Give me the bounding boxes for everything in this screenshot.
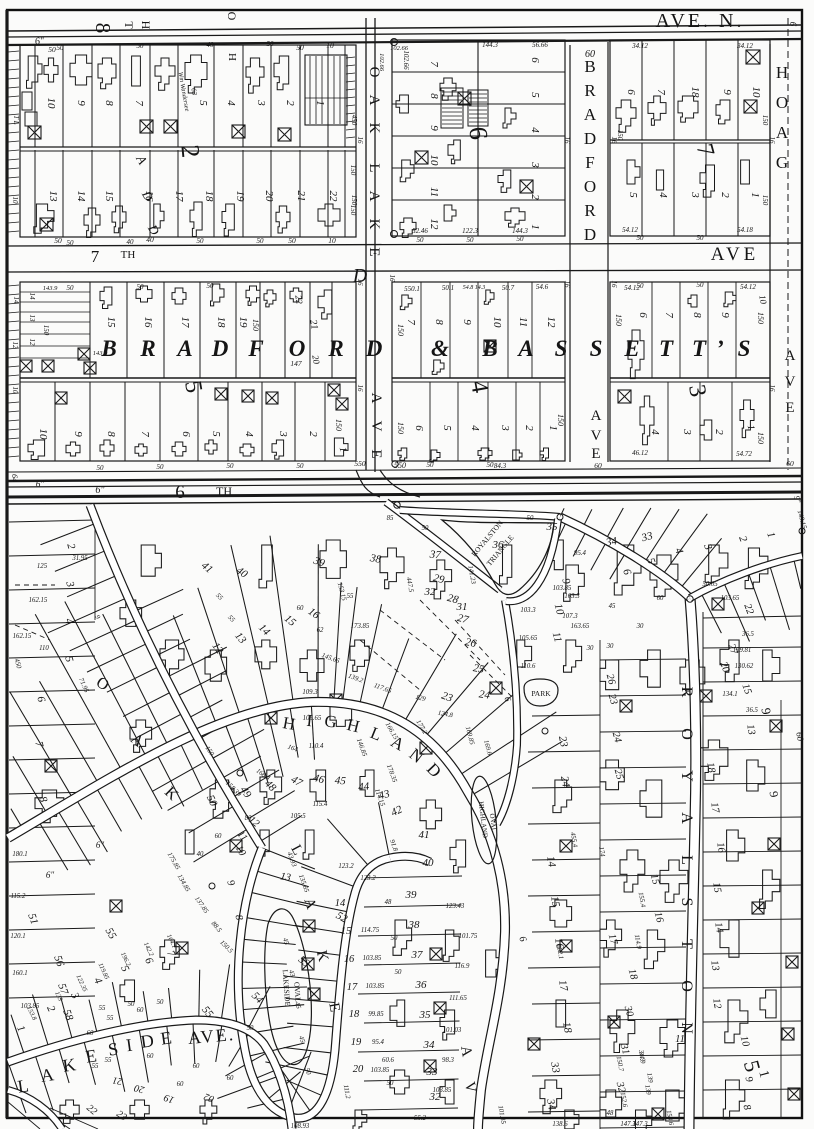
svg-text:19: 19: [351, 1037, 362, 1048]
svg-text:G: G: [776, 153, 788, 172]
svg-text:50: 50: [637, 234, 645, 242]
svg-text:550: 550: [394, 461, 406, 470]
svg-text:50: 50: [297, 462, 305, 470]
svg-text:12: 12: [545, 317, 557, 329]
svg-text:16: 16: [610, 281, 618, 289]
svg-text:8: 8: [103, 100, 115, 106]
svg-text:R: R: [584, 201, 596, 220]
svg-text:50: 50: [67, 239, 75, 247]
svg-text:R: R: [678, 687, 695, 698]
svg-text:64: 64: [10, 474, 19, 482]
svg-text:A: A: [368, 393, 384, 404]
svg-text:50: 50: [157, 999, 164, 1006]
svg-text:150: 150: [614, 314, 623, 326]
svg-text:2: 2: [529, 194, 541, 200]
svg-text:50: 50: [697, 281, 705, 289]
svg-text:180.1: 180.1: [12, 851, 27, 858]
svg-text:103.65: 103.65: [721, 595, 740, 602]
svg-text:16: 16: [388, 275, 396, 283]
svg-text:36.5: 36.5: [741, 631, 754, 638]
svg-text:7: 7: [405, 319, 417, 325]
svg-text:14: 14: [335, 898, 346, 909]
svg-text:103.85: 103.85: [366, 983, 385, 990]
svg-text:5: 5: [210, 431, 222, 437]
svg-text:3: 3: [255, 99, 267, 106]
svg-text:36.5: 36.5: [745, 707, 758, 714]
svg-text:125: 125: [37, 563, 48, 570]
svg-text:S: S: [678, 898, 695, 907]
svg-text:16: 16: [610, 137, 618, 145]
svg-text:115.4: 115.4: [313, 801, 328, 808]
svg-text:3: 3: [529, 161, 541, 168]
svg-text:E: E: [368, 449, 384, 458]
svg-text:50: 50: [517, 235, 525, 243]
svg-text:52.46: 52.46: [412, 227, 428, 235]
svg-text:17: 17: [347, 982, 358, 993]
svg-text:50: 50: [137, 42, 145, 50]
svg-text:4: 4: [649, 429, 661, 435]
svg-text:O: O: [678, 728, 695, 740]
svg-text:14: 14: [28, 293, 36, 301]
svg-text:G: G: [323, 711, 338, 732]
svg-text:50: 50: [48, 45, 56, 54]
svg-text:50: 50: [427, 461, 435, 469]
svg-text:18: 18: [215, 317, 227, 329]
svg-text:39: 39: [405, 889, 418, 901]
svg-text:O: O: [289, 336, 306, 361]
svg-text:110.4: 110.4: [309, 743, 324, 750]
svg-text:A: A: [776, 123, 789, 142]
svg-text:56.66: 56.66: [532, 41, 548, 49]
svg-text:150: 150: [761, 195, 769, 206]
svg-text:6: 6: [180, 431, 192, 437]
svg-text:A: A: [678, 812, 695, 824]
svg-text:V: V: [591, 428, 602, 444]
svg-text:60: 60: [193, 1063, 200, 1070]
svg-text:V: V: [785, 374, 796, 390]
svg-text:10: 10: [11, 387, 19, 395]
svg-text:PARK: PARK: [531, 689, 551, 698]
svg-text:50: 50: [391, 935, 398, 942]
svg-text:35: 35: [546, 521, 559, 533]
svg-text:103.85: 103.85: [21, 1003, 40, 1010]
svg-text:6": 6": [96, 840, 105, 850]
svg-text:55: 55: [92, 1063, 99, 1070]
svg-text:16: 16: [768, 385, 776, 393]
svg-text:18: 18: [203, 191, 215, 203]
svg-text:120.1: 120.1: [10, 933, 25, 940]
svg-text:55: 55: [99, 1005, 106, 1012]
svg-text:R: R: [327, 336, 343, 361]
svg-text:8: 8: [105, 431, 117, 437]
svg-text:T: T: [678, 939, 695, 949]
svg-text:8: 8: [433, 319, 445, 325]
svg-text:V: V: [368, 421, 384, 432]
svg-text:130.62: 130.62: [735, 663, 754, 670]
svg-text:10: 10: [326, 41, 334, 50]
svg-text:50: 50: [637, 282, 645, 290]
svg-text:N: N: [678, 1022, 695, 1034]
svg-text:162.15: 162.15: [13, 633, 32, 640]
svg-text:103.3: 103.3: [520, 607, 536, 614]
svg-text:50: 50: [247, 1025, 254, 1032]
svg-text:54.72: 54.72: [736, 450, 752, 458]
svg-text:21: 21: [295, 191, 307, 202]
svg-text:55.2: 55.2: [414, 1115, 426, 1122]
svg-text:98.3: 98.3: [442, 1057, 454, 1064]
svg-text:TH: TH: [121, 249, 136, 261]
svg-text:34.12: 34.12: [736, 42, 753, 50]
svg-text:6: 6: [463, 126, 493, 141]
svg-text:50.1: 50.1: [442, 284, 454, 292]
svg-text:2: 2: [523, 425, 535, 431]
svg-text:F: F: [247, 336, 263, 361]
svg-text:84.3: 84.3: [494, 462, 507, 470]
svg-text:E: E: [366, 247, 382, 256]
svg-text:45: 45: [609, 603, 616, 610]
svg-text:6": 6": [95, 485, 105, 496]
svg-text:123.43: 123.43: [446, 903, 465, 910]
svg-text:19: 19: [234, 191, 246, 203]
svg-text:123.2: 123.2: [338, 863, 354, 870]
svg-text:2: 2: [713, 429, 725, 435]
svg-text:5: 5: [529, 92, 541, 98]
svg-text:9: 9: [719, 312, 731, 318]
svg-text:O: O: [225, 12, 239, 21]
svg-text:150: 150: [349, 165, 357, 176]
svg-text:F: F: [585, 153, 594, 172]
svg-text:A: A: [39, 1064, 55, 1086]
svg-text:46.12: 46.12: [632, 449, 648, 457]
svg-text:L: L: [678, 855, 695, 865]
svg-text:D: D: [139, 1030, 155, 1052]
svg-text:13: 13: [708, 959, 721, 971]
svg-text:D: D: [584, 129, 596, 148]
svg-text:550: 550: [354, 459, 366, 468]
svg-text:60: 60: [657, 595, 664, 602]
svg-text:116.9: 116.9: [455, 963, 470, 970]
svg-text:108.93: 108.93: [291, 1123, 310, 1129]
svg-text:62: 62: [317, 627, 324, 634]
svg-text:10: 10: [750, 87, 762, 99]
svg-text:33: 33: [426, 1066, 439, 1078]
svg-text:&: &: [431, 336, 449, 361]
svg-text:50: 50: [296, 43, 304, 52]
svg-text:15: 15: [710, 881, 723, 893]
svg-text:S: S: [738, 336, 751, 361]
svg-text:32: 32: [424, 586, 437, 598]
svg-text:E: E: [591, 446, 600, 462]
svg-text:OVAL: OVAL: [292, 982, 302, 1003]
svg-text:7: 7: [133, 100, 145, 106]
svg-text:34: 34: [423, 1039, 436, 1051]
svg-text:16: 16: [356, 279, 364, 287]
svg-text:11: 11: [675, 1034, 685, 1045]
svg-text:21: 21: [112, 1074, 124, 1087]
svg-text:450: 450: [350, 115, 358, 126]
svg-text:9: 9: [75, 100, 87, 106]
svg-text:60: 60: [147, 1053, 154, 1060]
svg-text:16: 16: [563, 137, 571, 145]
svg-text:150: 150: [350, 195, 358, 206]
svg-text:50: 50: [527, 515, 534, 522]
svg-text:4: 4: [469, 425, 481, 431]
svg-text:110.6: 110.6: [521, 663, 536, 670]
svg-text:144.3: 144.3: [512, 227, 528, 235]
svg-text:5: 5: [197, 100, 209, 106]
svg-text:5: 5: [627, 192, 639, 198]
svg-text:1: 1: [547, 425, 559, 431]
svg-text:R: R: [584, 81, 596, 100]
svg-text:123.2: 123.2: [360, 875, 376, 882]
svg-text:1: 1: [749, 192, 761, 198]
svg-text:D: D: [365, 336, 383, 361]
svg-text:2: 2: [307, 431, 319, 437]
svg-text:50: 50: [157, 463, 165, 471]
svg-text:150: 150: [349, 205, 357, 216]
svg-text:6": 6": [46, 870, 55, 880]
svg-text:60: 60: [215, 833, 222, 840]
svg-text:6: 6: [637, 312, 649, 318]
svg-text:Y: Y: [678, 770, 695, 782]
svg-text:107.3: 107.3: [562, 613, 578, 620]
svg-text:163.3: 163.3: [564, 593, 580, 600]
svg-text:A: A: [366, 191, 382, 202]
svg-text:102.66: 102.66: [390, 45, 409, 52]
svg-text:8: 8: [91, 23, 115, 34]
svg-text:50: 50: [137, 283, 145, 291]
svg-text:12: 12: [428, 219, 440, 231]
svg-text:13: 13: [28, 315, 36, 323]
svg-text:14: 14: [75, 191, 87, 203]
svg-text:4: 4: [243, 431, 255, 437]
svg-text:50: 50: [288, 236, 296, 245]
svg-text:T: T: [659, 336, 674, 361]
svg-text:50: 50: [207, 282, 215, 290]
svg-text:102.66: 102.66: [402, 50, 410, 70]
svg-text:160.1: 160.1: [12, 970, 27, 977]
svg-text:17: 17: [179, 317, 191, 329]
svg-text:50: 50: [467, 236, 475, 244]
svg-text:36: 36: [492, 539, 505, 551]
svg-text:37: 37: [428, 548, 441, 561]
svg-text:5: 5: [441, 425, 453, 431]
svg-text:10: 10: [11, 197, 19, 205]
svg-text:2: 2: [175, 144, 205, 159]
svg-text:99.85: 99.85: [368, 1011, 384, 1018]
svg-text:13: 13: [744, 723, 757, 735]
svg-text:13: 13: [47, 191, 59, 203]
svg-text:85: 85: [387, 515, 394, 522]
svg-text:60: 60: [227, 1075, 234, 1082]
svg-text:O: O: [776, 93, 788, 112]
svg-text:K: K: [61, 1054, 77, 1076]
svg-text:7: 7: [655, 89, 667, 95]
svg-text:50: 50: [67, 284, 75, 292]
svg-text:4: 4: [225, 100, 237, 106]
svg-text:16: 16: [768, 137, 776, 145]
svg-text:105.65: 105.65: [303, 715, 322, 722]
svg-text:60: 60: [137, 1007, 144, 1014]
svg-text:TH: TH: [216, 484, 232, 498]
svg-text:138.6: 138.6: [552, 1121, 568, 1128]
svg-text:105.65: 105.65: [519, 635, 538, 642]
svg-text:6: 6: [788, 22, 798, 27]
svg-text:K: K: [366, 123, 382, 134]
svg-text:9: 9: [461, 319, 473, 325]
svg-text:60: 60: [594, 461, 602, 470]
svg-text:21: 21: [307, 319, 320, 331]
svg-text:110: 110: [39, 645, 49, 652]
svg-text:2: 2: [284, 100, 296, 106]
svg-text:50.7: 50.7: [502, 284, 515, 292]
svg-text:95.4: 95.4: [574, 550, 586, 557]
svg-text:6: 6: [413, 425, 425, 431]
svg-text:10: 10: [328, 236, 336, 245]
svg-text:37: 37: [411, 949, 424, 961]
svg-text:34.12: 34.12: [631, 42, 648, 50]
svg-text:8: 8: [428, 93, 440, 99]
svg-text:550.1: 550.1: [404, 285, 420, 293]
svg-text:80: 80: [245, 815, 252, 822]
svg-text:150: 150: [396, 422, 405, 434]
svg-text:50: 50: [128, 1001, 135, 1008]
svg-text:50.05: 50.05: [702, 581, 718, 588]
svg-text:122.3: 122.3: [462, 227, 478, 235]
svg-text:60: 60: [297, 605, 304, 612]
svg-text:10: 10: [37, 429, 49, 441]
svg-text:50: 50: [417, 236, 425, 244]
svg-text:11: 11: [428, 187, 440, 197]
svg-text:T: T: [122, 21, 136, 29]
svg-text:144.3: 144.3: [482, 41, 498, 49]
svg-text:7: 7: [91, 247, 100, 266]
svg-text:102.66: 102.66: [378, 53, 385, 72]
svg-text:9: 9: [721, 89, 733, 95]
svg-text:105.5: 105.5: [290, 813, 306, 820]
svg-text:54.12: 54.12: [740, 283, 756, 291]
svg-text:A: A: [366, 95, 382, 106]
svg-text:40: 40: [197, 851, 204, 858]
svg-text:41: 41: [419, 829, 430, 841]
svg-text:50: 50: [697, 234, 705, 242]
svg-text:143.9: 143.9: [43, 285, 58, 292]
svg-text:30: 30: [636, 623, 644, 630]
svg-text:AVE. N.: AVE. N.: [656, 10, 745, 32]
svg-text:109.3: 109.3: [302, 689, 318, 696]
svg-text:6: 6: [625, 89, 637, 95]
svg-text:173.85: 173.85: [351, 623, 370, 630]
svg-text:T: T: [692, 336, 707, 361]
svg-text:H: H: [776, 63, 788, 82]
svg-text:101.75: 101.75: [459, 933, 478, 940]
svg-text:54.8 14.3: 54.8 14.3: [463, 284, 486, 291]
svg-text:13: 13: [279, 871, 291, 884]
svg-text:7: 7: [428, 61, 440, 67]
svg-text:D: D: [211, 336, 229, 361]
svg-text:60: 60: [585, 49, 595, 60]
svg-text:150: 150: [756, 432, 765, 444]
svg-text:15: 15: [105, 317, 117, 329]
svg-text:’: ’: [716, 336, 724, 361]
svg-text:101.03: 101.03: [443, 1027, 462, 1034]
svg-text:3: 3: [681, 428, 693, 435]
svg-text:48: 48: [385, 899, 392, 906]
svg-text:10: 10: [45, 98, 57, 110]
svg-text:S: S: [590, 336, 603, 361]
svg-text:2: 2: [719, 192, 731, 198]
svg-text:T L: T L: [12, 115, 20, 125]
svg-text:60: 60: [177, 1081, 184, 1088]
svg-text:50: 50: [227, 462, 235, 470]
svg-text:50: 50: [422, 525, 429, 532]
svg-text:20: 20: [263, 191, 275, 203]
svg-text:19: 19: [237, 317, 249, 329]
svg-text:31.95: 31.95: [71, 555, 88, 562]
svg-text:54.12: 54.12: [622, 226, 638, 234]
svg-text:50: 50: [487, 461, 495, 469]
svg-text:50: 50: [54, 236, 62, 245]
svg-text:50: 50: [197, 237, 205, 245]
svg-text:16: 16: [356, 137, 364, 145]
svg-text:16: 16: [563, 281, 571, 289]
svg-text:50: 50: [387, 1080, 394, 1087]
svg-text:111.65: 111.65: [449, 995, 467, 1002]
svg-text:18: 18: [349, 1009, 360, 1020]
svg-text:103.85: 103.85: [433, 1087, 452, 1094]
svg-text:150: 150: [556, 414, 565, 426]
svg-text:17: 17: [173, 191, 185, 203]
svg-text:H: H: [226, 53, 238, 61]
svg-text:150: 150: [334, 419, 343, 431]
svg-text:22: 22: [327, 191, 339, 203]
svg-text:3: 3: [277, 430, 289, 437]
svg-text:103.85: 103.85: [371, 1067, 390, 1074]
svg-text:A: A: [591, 408, 602, 424]
svg-text:150: 150: [251, 319, 260, 331]
svg-text:L: L: [366, 163, 382, 172]
svg-text:60: 60: [786, 459, 794, 468]
svg-text:14: 14: [12, 297, 20, 305]
svg-text:3: 3: [499, 424, 511, 431]
svg-text:30: 30: [586, 645, 594, 652]
svg-text:24: 24: [478, 688, 491, 701]
svg-text:60.6: 60.6: [382, 1057, 394, 1064]
svg-text:162.15: 162.15: [29, 597, 48, 604]
svg-text:6: 6: [175, 482, 185, 503]
svg-text:11: 11: [517, 317, 529, 327]
svg-text:150: 150: [761, 115, 769, 126]
svg-text:55: 55: [347, 593, 354, 600]
svg-text:A: A: [584, 105, 597, 124]
svg-text:45: 45: [334, 775, 347, 788]
svg-text:R: R: [139, 336, 155, 361]
svg-text:150: 150: [396, 324, 405, 336]
svg-text:35: 35: [419, 1009, 432, 1021]
svg-text:40: 40: [127, 238, 135, 246]
svg-text:103.85: 103.85: [553, 585, 572, 592]
svg-text:E: E: [785, 400, 794, 416]
svg-text:AVE.: AVE.: [187, 1024, 236, 1048]
svg-text:9: 9: [72, 431, 84, 437]
svg-text:40: 40: [423, 857, 435, 869]
svg-text:40: 40: [146, 235, 154, 244]
svg-text:40: 40: [207, 41, 215, 49]
svg-text:AVE: AVE: [711, 244, 760, 265]
svg-text:147.3: 147.3: [632, 1121, 648, 1128]
svg-text:K: K: [366, 219, 382, 230]
svg-text:12: 12: [11, 342, 19, 350]
